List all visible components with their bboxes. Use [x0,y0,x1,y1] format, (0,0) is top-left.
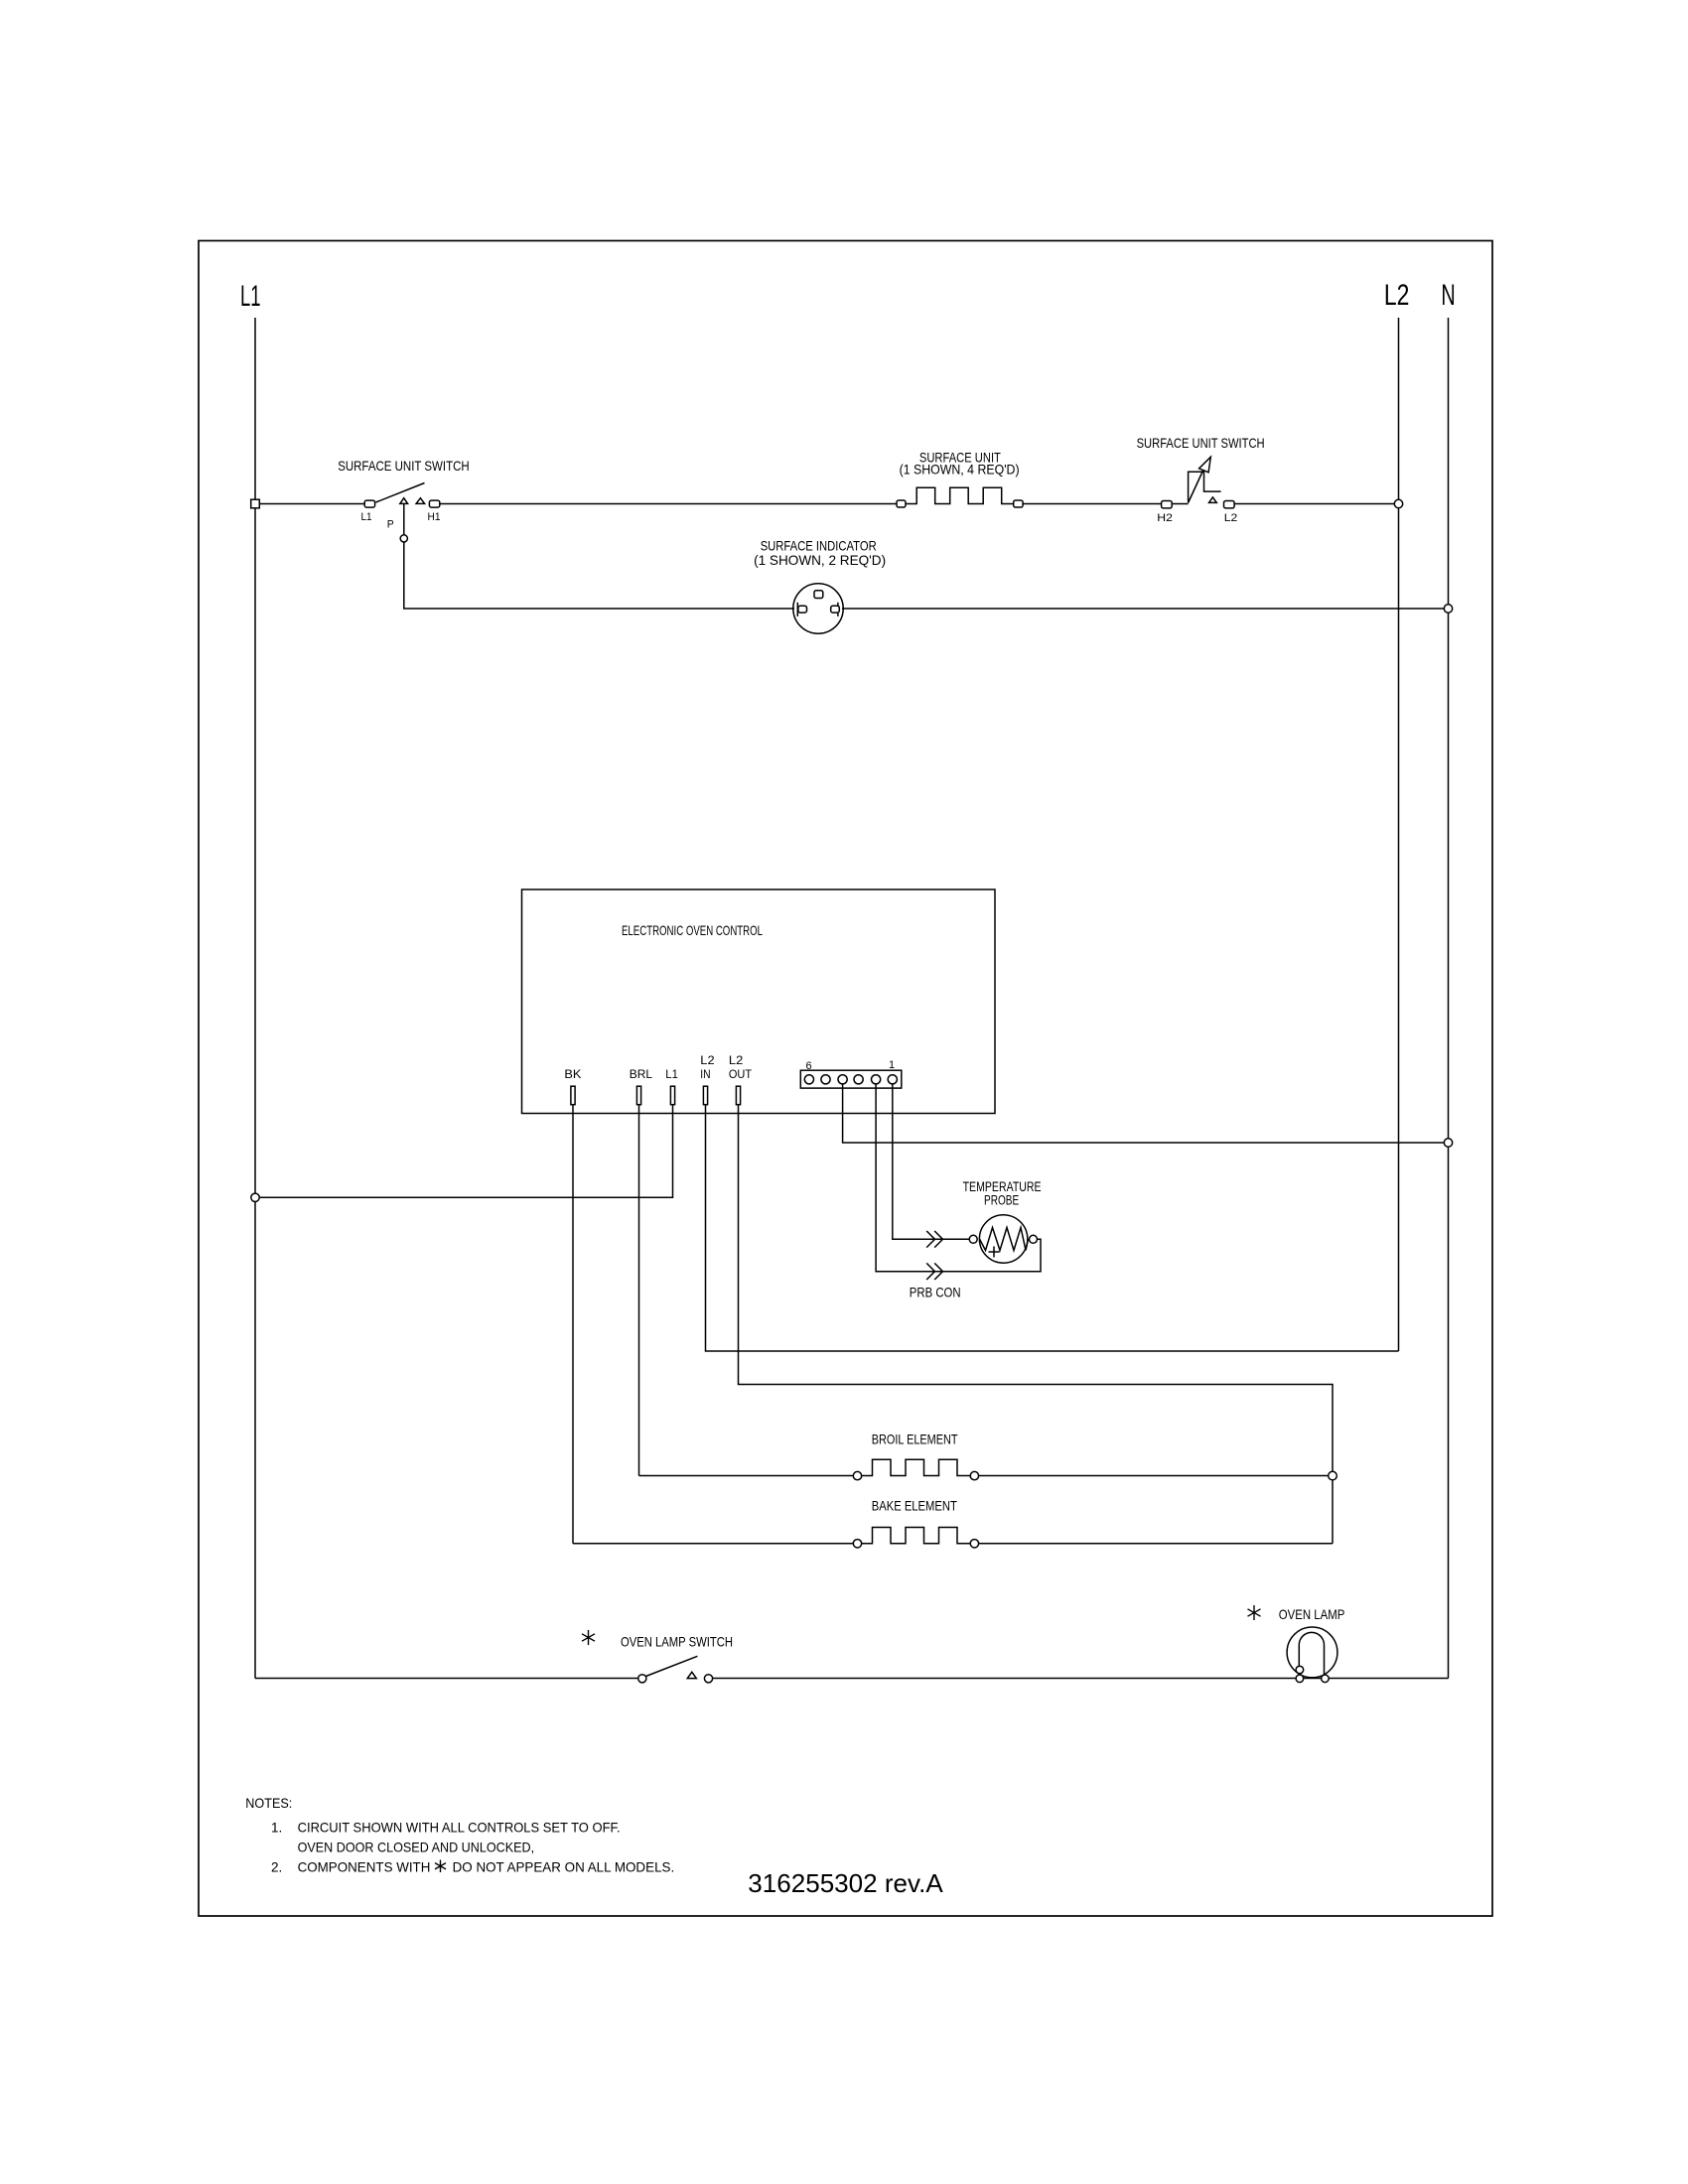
svg-text:OVEN LAMP: OVEN LAMP [1279,1606,1345,1622]
svg-text:BAKE ELEMENT: BAKE ELEMENT [872,1498,957,1514]
svg-text:OVEN DOOR CLOSED AND UNLOCKED,: OVEN DOOR CLOSED AND UNLOCKED, [298,1840,534,1855]
svg-text:BRL: BRL [630,1067,653,1081]
svg-text:1: 1 [889,1059,895,1071]
svg-text:L1: L1 [240,280,261,313]
svg-text:OVEN LAMP SWITCH: OVEN LAMP SWITCH [621,1633,733,1649]
svg-text:L2: L2 [1224,512,1238,524]
svg-text:PROBE: PROBE [984,1192,1019,1208]
svg-text:IN: IN [700,1067,710,1081]
svg-text:L2: L2 [729,1053,744,1067]
svg-text:ELECTRONIC OVEN CONTROL: ELECTRONIC OVEN CONTROL [622,922,763,938]
svg-text:CIRCUIT SHOWN WITH ALL CONTROL: CIRCUIT SHOWN WITH ALL CONTROLS SET TO O… [298,1820,621,1836]
svg-text:OUT: OUT [729,1067,753,1081]
svg-text:(1 SHOWN, 2 REQ'D): (1 SHOWN, 2 REQ'D) [754,552,886,568]
svg-text:P: P [387,519,394,531]
svg-text:L1: L1 [665,1067,678,1081]
svg-text:BROIL ELEMENT: BROIL ELEMENT [872,1431,958,1446]
svg-text:COMPONENTS WITH: COMPONENTS WITH [298,1858,431,1874]
svg-text:L2: L2 [700,1053,715,1067]
svg-text:6: 6 [806,1060,812,1072]
svg-text:NOTES:: NOTES: [245,1795,292,1811]
svg-text:N: N [1441,279,1455,312]
svg-text:316255302 rev.A: 316255302 rev.A [748,1868,943,1898]
svg-text:H1: H1 [428,511,441,523]
svg-text:SURFACE UNIT SWITCH: SURFACE UNIT SWITCH [338,458,470,474]
svg-text:1.: 1. [271,1820,282,1836]
svg-text:H2: H2 [1157,512,1173,524]
svg-text:SURFACE UNIT SWITCH: SURFACE UNIT SWITCH [1137,435,1265,451]
svg-text:2.: 2. [271,1858,282,1874]
svg-text:PRB CON: PRB CON [910,1285,961,1300]
svg-text:DO NOT APPEAR ON ALL MODELS.: DO NOT APPEAR ON ALL MODELS. [453,1858,675,1874]
svg-text:L2: L2 [1384,279,1410,312]
svg-text:L1: L1 [361,511,372,523]
svg-text:BK: BK [564,1067,581,1081]
svg-text:(1 SHOWN, 4 REQ'D): (1 SHOWN, 4 REQ'D) [900,462,1020,478]
